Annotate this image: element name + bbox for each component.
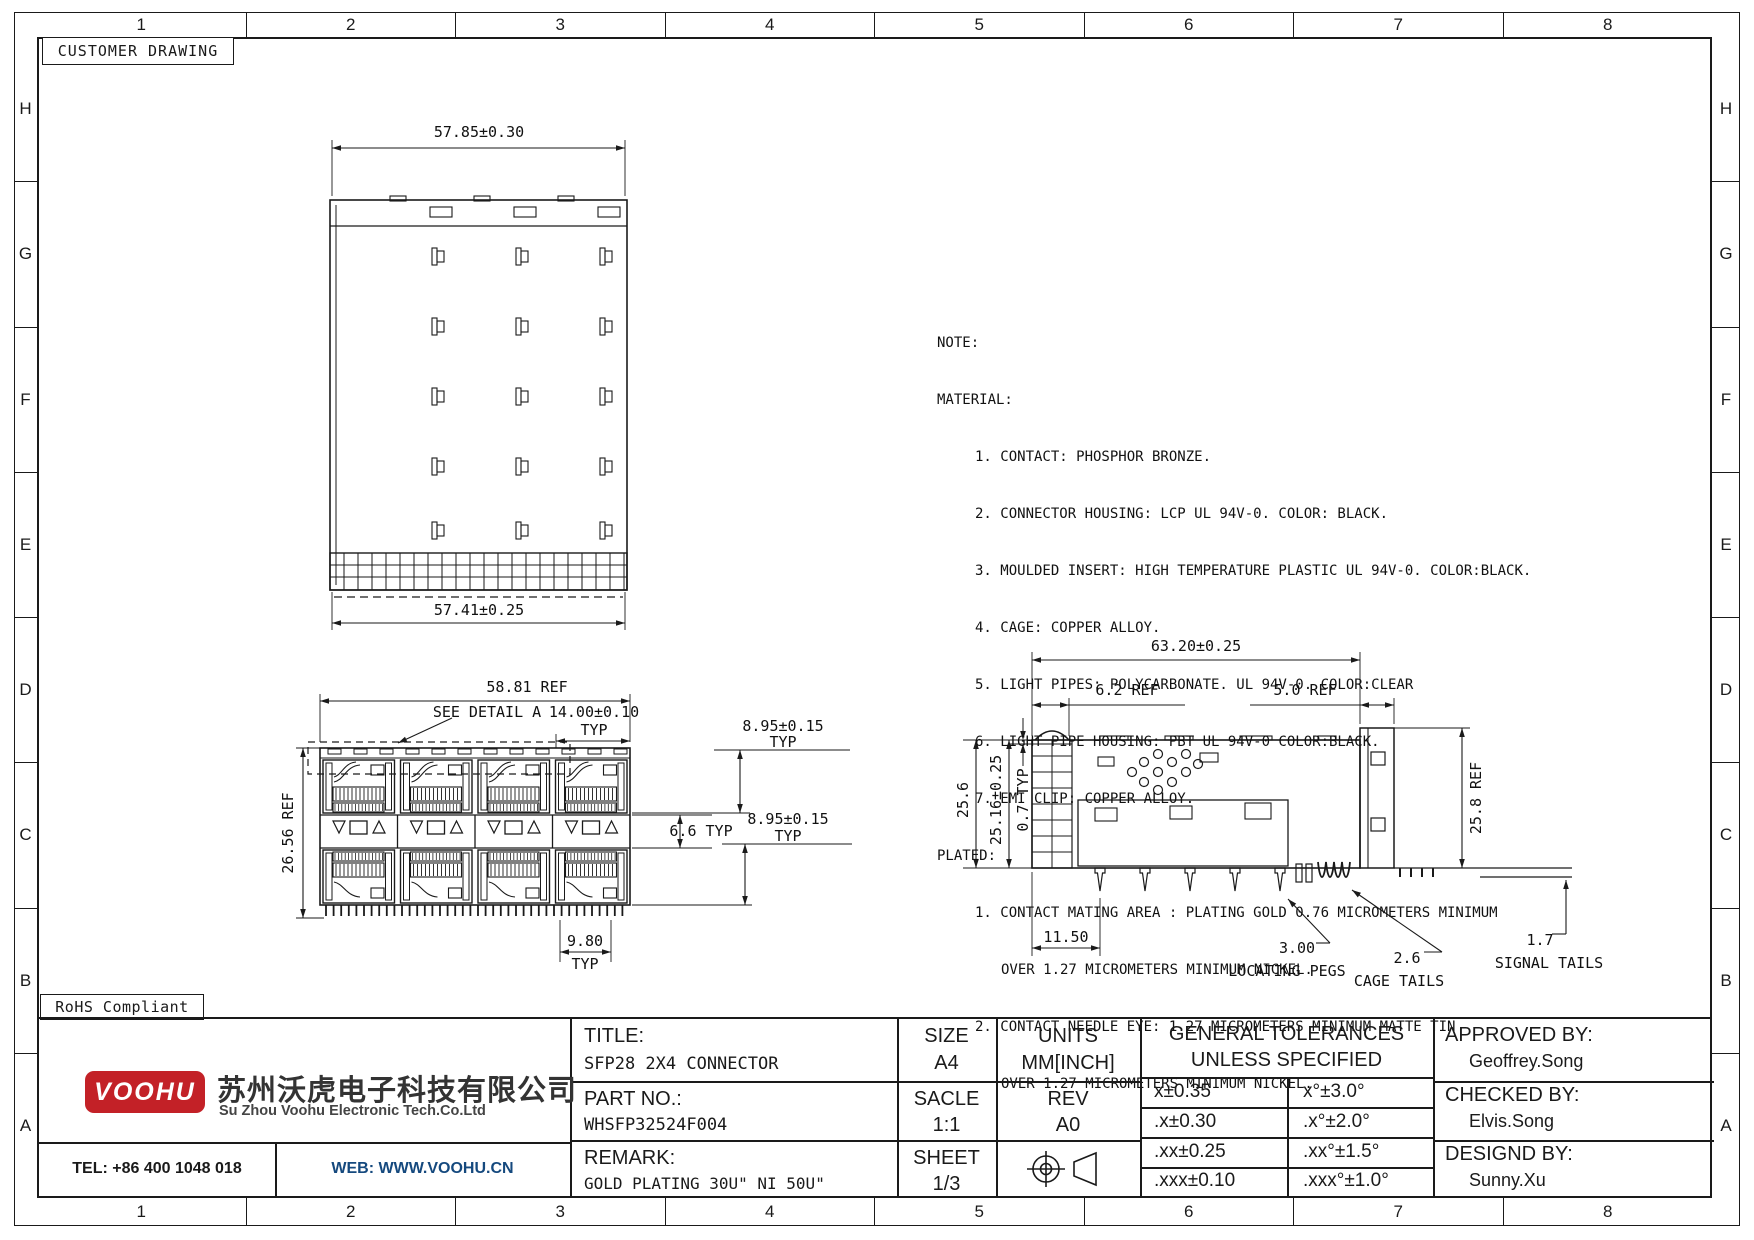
dim-port-height2: 8.95±0.15 [747, 810, 828, 828]
sheet-value: 1/3 [897, 1173, 996, 1196]
dim-port-height-typ: TYP [769, 733, 796, 751]
size-value: A4 [897, 1052, 996, 1075]
tolerance-header-2: UNLESS SPECIFIED [1140, 1049, 1433, 1072]
designed-name: Sunny.Xu [1469, 1170, 1546, 1191]
dim-port-height2-typ: TYP [774, 827, 801, 845]
rev-label: REV [996, 1088, 1140, 1111]
title-block: VOOHU 苏州沃虎电子科技有限公司 Su Zhou Voohu Electro… [37, 1017, 1712, 1198]
sheet-label: SHEET [897, 1147, 996, 1170]
checked-label: CHECKED BY: [1445, 1084, 1579, 1107]
dim-front-width: 58.81 REF [486, 678, 567, 696]
dim-top-width: 57.85±0.30 [434, 123, 524, 141]
note-line: 1. CONTACT MATING AREA : PLATING GOLD 0.… [937, 904, 1531, 923]
note-line: 2. CONNECTOR HOUSING: LCP UL 94V-0. COLO… [937, 505, 1531, 524]
company-logo: VOOHU [85, 1071, 205, 1113]
dim-tail-pitch-typ: TYP [571, 955, 598, 973]
units-value: MM[INCH] [996, 1052, 1140, 1075]
drawing-sheet: { "sheet": { "label": "CUSTOMER DRAWING"… [0, 0, 1754, 1240]
tolerance-value: .xxx±0.10 [1154, 1170, 1235, 1192]
remark-label: REMARK: [584, 1147, 675, 1170]
note-line: 5. LIGHT PIPES: POLYCARBONATE. UL 94V-0.… [937, 676, 1531, 695]
scale-label: SACLE [897, 1088, 996, 1111]
note-line: 1. CONTACT: PHOSPHOR BRONZE. [937, 448, 1531, 467]
note-line: 6. LIGHT PIPE HOUSING: PBT UL 94V-0 COLO… [937, 733, 1531, 752]
dim-front-pitch: 14.00±0.10 [549, 703, 639, 721]
approved-label: APPROVED BY: [1445, 1024, 1593, 1047]
tolerance-value: .x±0.30 [1154, 1111, 1216, 1133]
dim-mid-height: 6.6 TYP [669, 822, 732, 840]
rev-value: A0 [996, 1114, 1140, 1137]
note-line: 4. CAGE: COPPER ALLOY. [937, 619, 1531, 638]
remark-value: GOLD PLATING 30U" NI 50U" [584, 1174, 825, 1193]
dim-front-pitch-typ: TYP [580, 721, 607, 739]
tolerance-value: x°±3.0° [1303, 1081, 1365, 1103]
company-logo-text: VOOHU [94, 1078, 196, 1107]
title-label: TITLE: [584, 1025, 644, 1048]
dim-top-width-bottom: 57.41±0.25 [434, 601, 524, 619]
size-label: SIZE [897, 1025, 996, 1048]
tolerance-value: .x°±2.0° [1303, 1111, 1370, 1133]
title-value: SFP28 2X4 CONNECTOR [584, 1054, 778, 1074]
tolerance-header-1: GENERAL TOLERANCES [1140, 1023, 1433, 1046]
company-tel: TEL: +86 400 1048 018 [39, 1142, 275, 1196]
note-line: NOTE: [937, 334, 1531, 353]
dim-tail-pitch: 9.80 [567, 932, 603, 950]
tolerance-value: .xxx°±1.0° [1303, 1170, 1389, 1192]
detail-callout: SEE DETAIL A [433, 703, 541, 721]
checked-name: Elvis.Song [1469, 1111, 1554, 1132]
designed-label: DESIGND BY: [1445, 1143, 1573, 1166]
tolerance-value: x±0.35 [1154, 1081, 1211, 1103]
tolerance-value: .xx±0.25 [1154, 1141, 1226, 1163]
note-line: 7. EMI CLIP: COPPER ALLOY. [937, 790, 1531, 809]
note-line: PLATED: [937, 847, 1531, 866]
units-label: UNITS [996, 1025, 1140, 1048]
note-line: MATERIAL: [937, 391, 1531, 410]
company-web: WEB: WWW.VOOHU.CN [275, 1142, 570, 1196]
note-line: OVER 1.27 MICROMETERS MINIMUM NICKEL. [937, 961, 1531, 980]
partno-label: PART NO.: [584, 1088, 682, 1111]
scale-value: 1:1 [897, 1114, 996, 1137]
note-line: 3. MOULDED INSERT: HIGH TEMPERATURE PLAS… [937, 562, 1531, 581]
third-angle-projection-icon [1026, 1147, 1110, 1191]
tolerance-value: .xx°±1.5° [1303, 1141, 1379, 1163]
dim-front-height: 26.56 REF [279, 792, 297, 873]
notes-block: NOTE: MATERIAL: 1. CONTACT: PHOSPHOR BRO… [937, 296, 1531, 1113]
company-name-en: Su Zhou Voohu Electronic Tech.Co.Ltd [219, 1103, 486, 1119]
approved-name: Geoffrey.Song [1469, 1051, 1583, 1072]
partno-value: WHSFP32524F004 [584, 1115, 727, 1135]
